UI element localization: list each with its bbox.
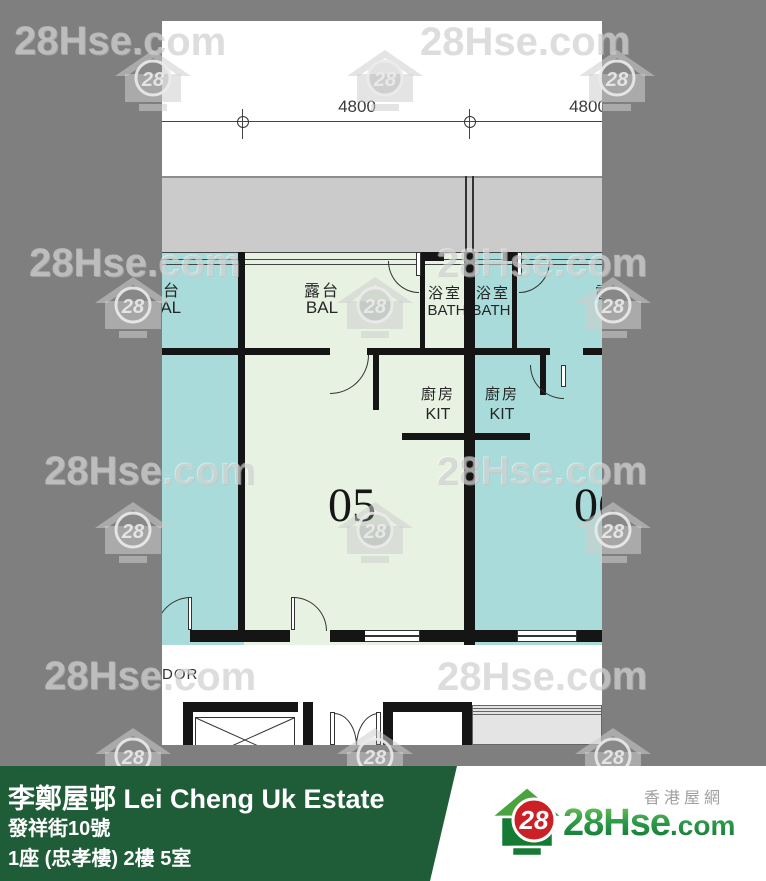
dimension-label: 4800 <box>330 97 384 117</box>
dimension-label: 4800 <box>561 97 602 117</box>
kitchen-label-en-unit05: KIT <box>418 406 458 424</box>
svg-text:28: 28 <box>605 69 629 91</box>
unit-number-05: 05 <box>320 482 384 530</box>
unit-number-06: 06 <box>566 482 602 530</box>
elevator-icon <box>195 717 295 745</box>
logo-number: 28 <box>519 805 549 835</box>
footer-banner: 李鄭屋邨 Lei Cheng Uk Estate 發祥街10號 1座 (忠孝樓)… <box>0 766 766 881</box>
estate-address: 發祥街10號 <box>8 812 110 841</box>
wall <box>464 252 475 645</box>
wall <box>162 348 330 355</box>
28hse-house-logo-icon: 28 <box>488 784 566 860</box>
kitchen-label-cn-unit06: 廚房 <box>479 383 525 404</box>
stairs-step-line <box>472 711 602 712</box>
brand-wordmark: 28Hse.com <box>563 802 735 845</box>
svg-text:28: 28 <box>601 521 625 543</box>
door-threshold <box>363 630 420 642</box>
wall <box>183 702 193 745</box>
balcony-label-en-left-unit: BAL <box>162 298 181 318</box>
wall <box>238 252 245 633</box>
page-background: 4800 4800 露台 BAL 露台 BAL 露台 浴室 浴室 BATH BA… <box>0 0 766 881</box>
svg-text:28: 28 <box>121 521 145 543</box>
upper-structure-band <box>162 176 602 252</box>
svg-text:28: 28 <box>121 296 145 318</box>
brand-suffix: .com <box>670 810 735 842</box>
wall <box>303 702 313 745</box>
wall <box>420 630 475 642</box>
balcony-label-en-unit05: BAL <box>300 298 344 318</box>
kitchen-label-en-unit06: KIT <box>482 406 522 424</box>
floor-plan: 4800 4800 露台 BAL 露台 BAL 露台 浴室 浴室 BATH BA… <box>162 21 602 745</box>
kitchen-label-cn-unit05: 廚房 <box>415 383 461 404</box>
wall <box>583 348 602 355</box>
door-leaf <box>416 252 421 276</box>
wall <box>183 702 298 712</box>
door-leaf <box>517 252 522 276</box>
wall <box>475 630 517 642</box>
wall <box>402 433 464 440</box>
wall <box>190 630 245 642</box>
door-leaf <box>291 597 295 630</box>
door-leaf <box>376 712 381 745</box>
dimension-tick-circle <box>237 116 249 128</box>
wall <box>383 702 393 745</box>
wall <box>367 348 550 355</box>
door-swing-arc <box>334 713 357 745</box>
wall <box>475 433 530 440</box>
watermark-house-icon: 28 <box>93 500 173 564</box>
brand-main: 28Hse <box>563 802 670 845</box>
door-leaf <box>561 365 566 387</box>
wall <box>420 252 444 261</box>
estate-title: 李鄭屋邨 Lei Cheng Uk Estate <box>8 777 385 816</box>
watermark-house-icon: 28 <box>93 275 173 339</box>
balcony-edge-line <box>162 252 602 253</box>
door-threshold <box>517 630 577 642</box>
band-divider-line <box>472 176 474 252</box>
wall <box>383 702 472 712</box>
balcony-label-cn-unit06: 露台 <box>595 279 602 303</box>
door-leaf <box>188 597 192 630</box>
door-leaf <box>330 712 335 745</box>
wall <box>330 630 365 642</box>
wall <box>245 630 290 642</box>
stairs-step-line <box>472 714 602 715</box>
bath-label-cn-unit05: 浴室 <box>422 282 468 303</box>
stairs-step-line <box>472 708 602 709</box>
wall <box>462 702 472 745</box>
band-divider-line <box>465 176 467 252</box>
dimension-tick-circle <box>464 116 476 128</box>
estate-unit-info: 1座 (忠孝樓) 2樓 5室 <box>8 842 191 871</box>
dimension-line <box>162 121 602 122</box>
corridor-label: DOR <box>162 666 198 683</box>
wall <box>503 252 518 261</box>
svg-text:28: 28 <box>601 296 625 318</box>
balcony-railing-line <box>162 259 602 260</box>
bath-label-cn-unit06: 浴室 <box>470 282 516 303</box>
wall <box>577 630 602 642</box>
wall <box>373 355 379 410</box>
